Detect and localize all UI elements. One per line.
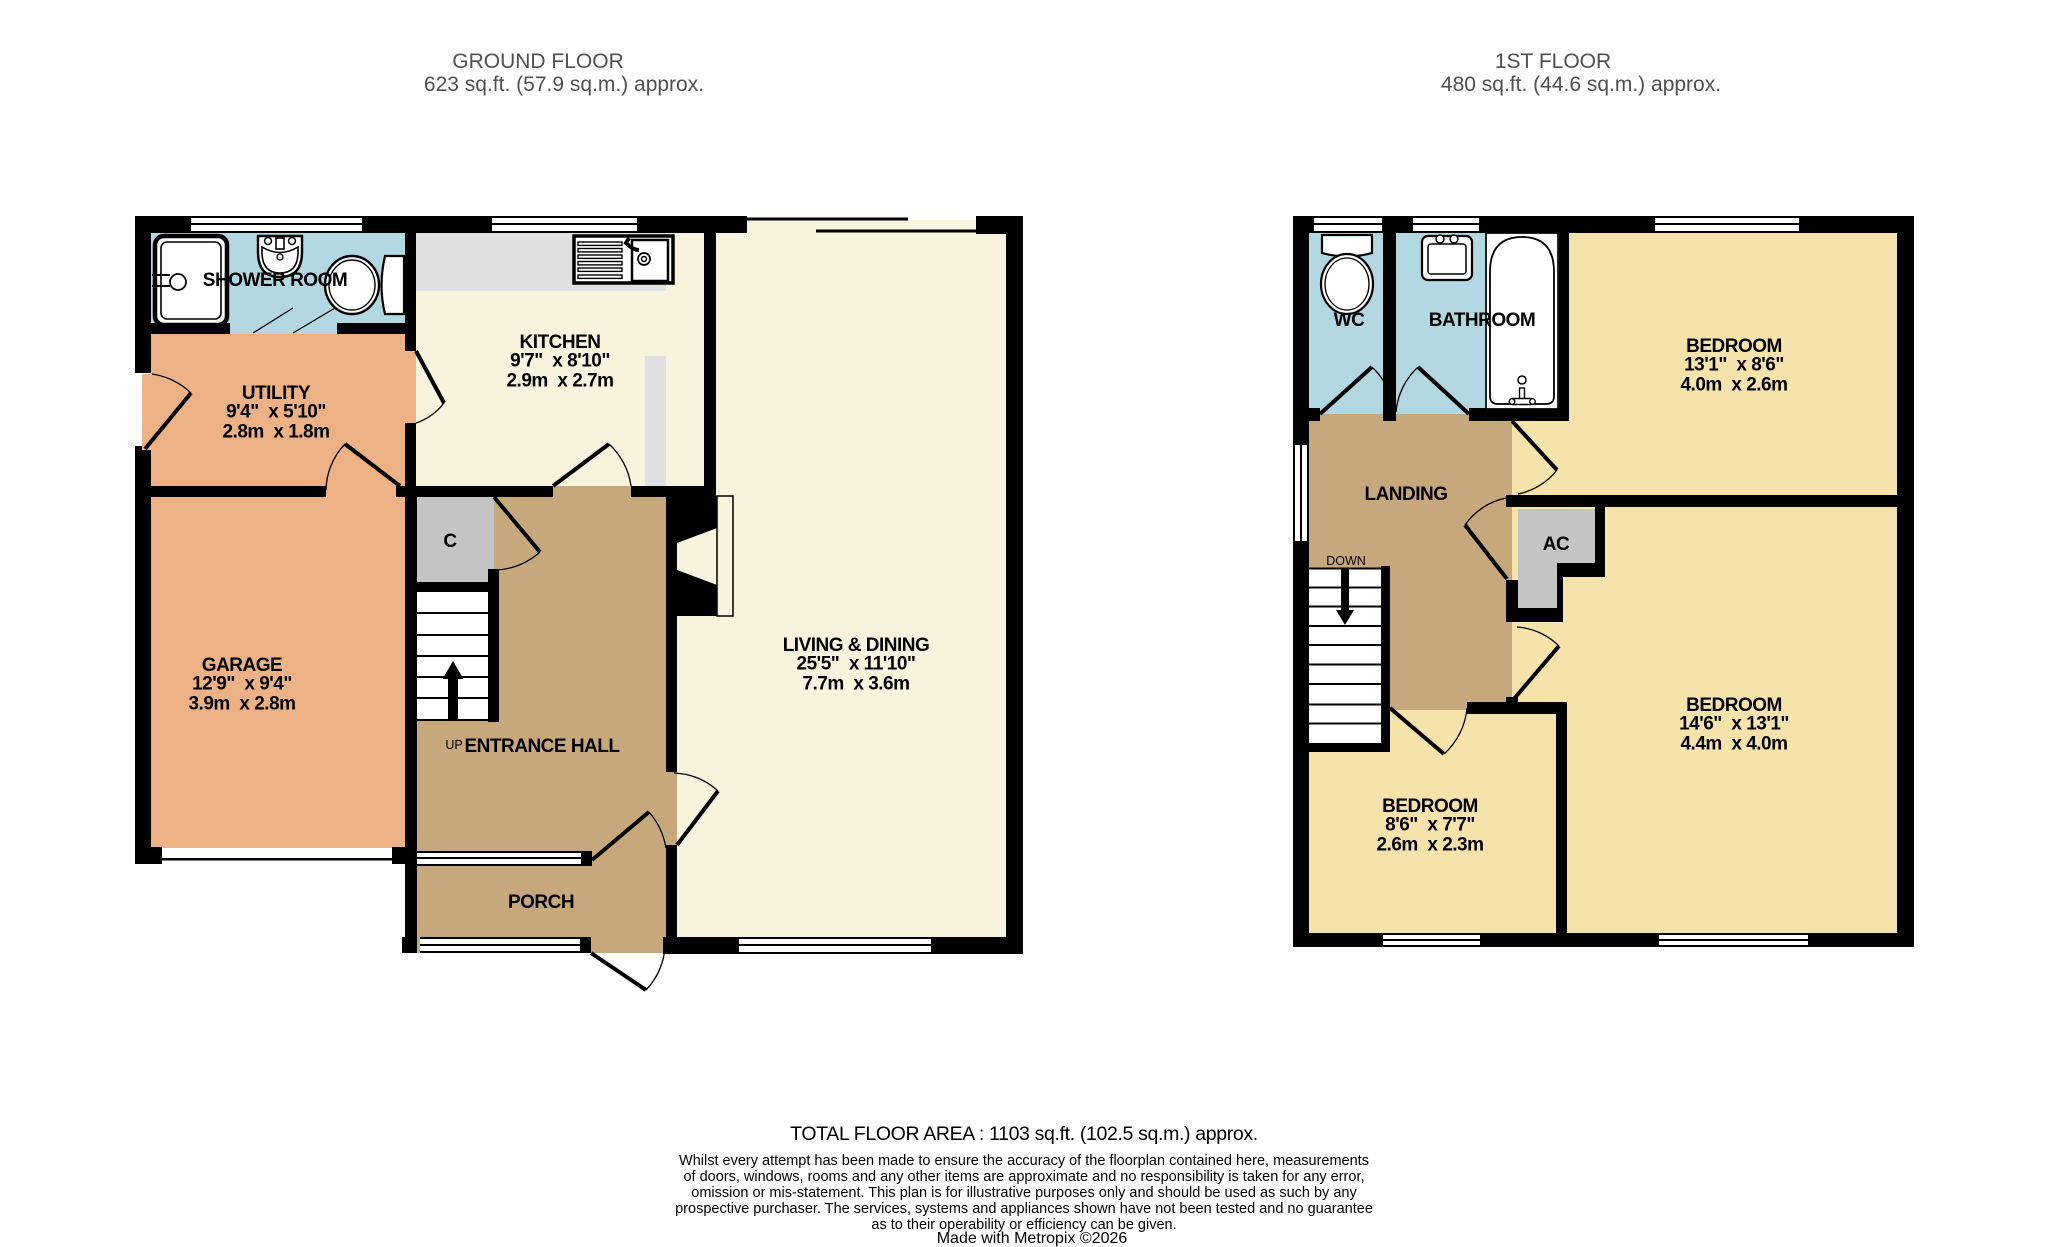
svg-text:4.4m x 4.0m: 4.4m x 4.0m — [1680, 734, 1787, 755]
svg-text:25'5" x 11'10": 25'5" x 11'10" — [797, 654, 916, 675]
svg-text:omission or mis-statement. Thi: omission or mis-statement. This plan is … — [691, 1185, 1357, 1201]
svg-text:3.9m x 2.8m: 3.9m x 2.8m — [188, 694, 295, 715]
svg-text:prospective purchaser. The ser: prospective purchaser. The services, sys… — [675, 1201, 1373, 1217]
svg-text:8'6" x 7'7": 8'6" x 7'7" — [1385, 815, 1475, 836]
svg-text:12'9" x 9'4": 12'9" x 9'4" — [192, 674, 292, 695]
svg-text:UP: UP — [445, 738, 462, 752]
svg-text:DOWN: DOWN — [1326, 554, 1366, 568]
svg-text:2.9m x 2.7m: 2.9m x 2.7m — [506, 371, 613, 392]
svg-text:ENTRANCE HALL: ENTRANCE HALL — [465, 736, 621, 757]
svg-text:WC: WC — [1334, 310, 1365, 331]
svg-text:7.7m x 3.6m: 7.7m x 3.6m — [802, 674, 909, 695]
svg-text:PORCH: PORCH — [508, 892, 574, 913]
svg-text:2.8m x 1.8m: 2.8m x 1.8m — [222, 422, 329, 443]
svg-text:1ST FLOOR: 1ST FLOOR — [1495, 50, 1611, 73]
svg-text:of doors, windows, rooms and a: of doors, windows, rooms and any other i… — [683, 1169, 1364, 1185]
svg-text:BATHROOM: BATHROOM — [1429, 310, 1535, 331]
svg-text:14'6" x 13'1": 14'6" x 13'1" — [1679, 714, 1789, 735]
svg-text:623 sq.ft. (57.9 sq.m.) approx: 623 sq.ft. (57.9 sq.m.) approx. — [424, 73, 704, 96]
svg-text:GROUND FLOOR: GROUND FLOOR — [452, 50, 624, 73]
svg-text:LANDING: LANDING — [1364, 484, 1447, 505]
svg-text:4.0m x 2.6m: 4.0m x 2.6m — [1680, 375, 1787, 396]
svg-text:SHOWER ROOM: SHOWER ROOM — [203, 270, 347, 291]
svg-text:TOTAL FLOOR AREA : 1103 sq.ft.: TOTAL FLOOR AREA : 1103 sq.ft. (102.5 sq… — [790, 1123, 1258, 1145]
svg-text:2.6m x 2.3m: 2.6m x 2.3m — [1376, 835, 1483, 856]
svg-text:C: C — [443, 531, 457, 552]
svg-text:480 sq.ft. (44.6 sq.m.) approx: 480 sq.ft. (44.6 sq.m.) approx. — [1441, 73, 1721, 96]
svg-text:13'1" x 8'6": 13'1" x 8'6" — [1684, 355, 1784, 376]
svg-text:9'4" x 5'10": 9'4" x 5'10" — [226, 402, 326, 423]
svg-text:9'7" x 8'10": 9'7" x 8'10" — [510, 351, 610, 372]
svg-text:Made with Metropix ©2026: Made with Metropix ©2026 — [937, 1230, 1128, 1247]
svg-text:Whilst every attempt has been: Whilst every attempt has been made to en… — [679, 1153, 1369, 1169]
svg-text:AC: AC — [1543, 534, 1570, 555]
